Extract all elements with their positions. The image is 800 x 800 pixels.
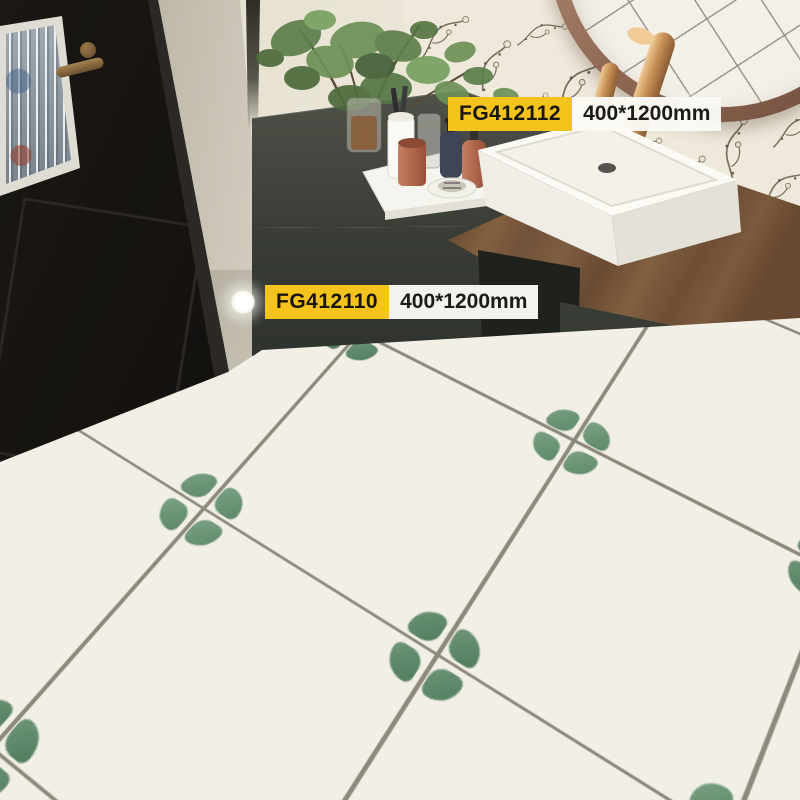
hotspot-label-1[interactable]: FG412112 400*1200mm xyxy=(448,97,721,131)
product-size-badge[interactable]: 400*1200mm xyxy=(389,285,538,319)
product-size-badge[interactable]: 400*400mm xyxy=(503,664,641,698)
product-size-badge[interactable]: 400*1200mm xyxy=(572,97,721,131)
bathroom-product-photo: FG412112 400*1200mm FG412110 400*1200mm … xyxy=(0,0,800,800)
hotspot-dot-3[interactable] xyxy=(355,669,381,695)
sink-drain xyxy=(598,163,616,173)
threshold-strip xyxy=(0,665,158,800)
product-code-badge[interactable]: FG412112 xyxy=(448,97,572,131)
soap-dish xyxy=(428,178,476,198)
hotspot-label-3[interactable]: FG4218J 400*400mm xyxy=(390,664,641,698)
product-code-badge[interactable]: FG4218J xyxy=(390,664,503,698)
hotspot-label-2[interactable]: FG412110 400*1200mm xyxy=(265,285,538,319)
terracotta-cup xyxy=(398,138,426,186)
product-code-badge[interactable]: FG412110 xyxy=(265,285,389,319)
hotspot-dot-2[interactable] xyxy=(230,289,256,315)
